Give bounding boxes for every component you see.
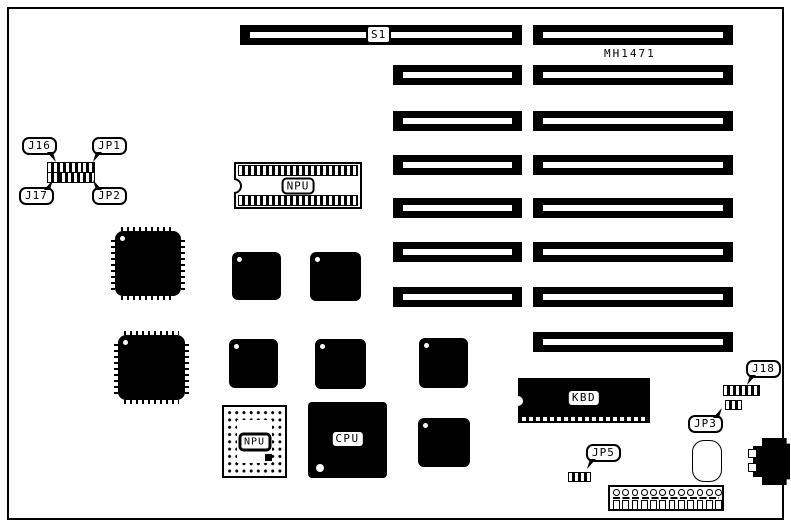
pin-square <box>678 500 685 510</box>
expansion-slot <box>393 111 522 131</box>
expansion-slot <box>533 65 733 85</box>
din-pin <box>748 463 757 472</box>
callout-j17: J17 <box>19 187 54 205</box>
pin-square <box>622 500 629 510</box>
pin-oval <box>715 489 722 496</box>
callout-j18: J18 <box>746 360 781 378</box>
pin-ticks <box>121 296 175 300</box>
connector-square-pins <box>610 500 722 510</box>
pin-oval <box>697 489 704 496</box>
qfp-chip-2 <box>118 335 185 400</box>
pin-oval <box>669 489 676 496</box>
npu-dip-label: NPU <box>282 177 315 194</box>
pin-oval <box>659 489 666 496</box>
jumper-block-jp2 <box>61 172 95 183</box>
callout-jp3: JP3 <box>688 415 723 433</box>
expansion-slot <box>533 25 733 45</box>
pin-ticks <box>181 237 185 290</box>
power-connector <box>608 485 724 511</box>
pin-square <box>650 500 657 510</box>
pin-square <box>697 500 704 510</box>
pin-oval <box>678 489 685 496</box>
din-pin <box>748 449 757 458</box>
expansion-slot <box>393 155 522 175</box>
kbd-label: KBD <box>569 391 599 405</box>
callout-jp2: JP2 <box>92 187 127 205</box>
callout-j18-label: J18 <box>752 362 775 375</box>
expansion-slot <box>393 242 522 262</box>
callout-jp1: JP1 <box>92 137 127 155</box>
callout-jp5: JP5 <box>586 444 621 462</box>
pin-square <box>659 500 666 510</box>
pga-center: NPU <box>237 420 272 463</box>
pin-oval <box>650 489 657 496</box>
expansion-slot <box>533 111 733 131</box>
expansion-slot <box>393 287 522 307</box>
callout-jp2-label: JP2 <box>98 189 121 202</box>
expansion-slot <box>533 332 733 352</box>
jumper-block-j18 <box>723 385 760 396</box>
motherboard-diagram: S1 MH1471 J16 JP1 J17 JP2 NPU <box>0 0 791 527</box>
pin-ticks <box>111 237 115 290</box>
callout-j16: J16 <box>22 137 57 155</box>
npu-pga-label: NPU <box>238 432 271 451</box>
pin-square <box>613 500 620 510</box>
chip <box>229 339 278 388</box>
chip <box>315 339 366 389</box>
chip <box>232 252 281 300</box>
jumper-block-jp3 <box>725 400 742 410</box>
expansion-slot <box>533 287 733 307</box>
chip <box>418 418 470 467</box>
expansion-slot <box>393 198 522 218</box>
expansion-slot <box>533 242 733 262</box>
pin-oval <box>622 489 629 496</box>
pin-oval <box>687 489 694 496</box>
pin-square <box>715 500 722 510</box>
pin-ticks <box>114 341 118 394</box>
dip-notch <box>234 178 242 194</box>
kbd-chip: KBD <box>518 378 650 423</box>
connector-dashes <box>613 497 719 499</box>
board-model-text: MH1471 <box>604 47 656 60</box>
crystal-outline <box>692 440 722 482</box>
expansion-slot <box>393 65 522 85</box>
expansion-slot <box>533 155 733 175</box>
pin-ticks <box>121 227 175 231</box>
pin-ticks <box>185 341 189 394</box>
callout-j17-label: J17 <box>25 189 48 202</box>
npu-pga-socket: NPU <box>222 405 287 478</box>
chip <box>419 338 468 388</box>
cpu-label: CPU <box>332 432 362 446</box>
pin-oval <box>641 489 648 496</box>
callout-jp1-label: JP1 <box>98 139 121 152</box>
keyboard-din-connector <box>762 438 790 485</box>
jumper-block-j17 <box>47 172 61 183</box>
pga-pin1-square <box>265 454 272 461</box>
pin-square <box>641 500 648 510</box>
pin-ticks <box>124 400 179 404</box>
cpu-chip: CPU <box>308 402 387 478</box>
pin-square <box>669 500 676 510</box>
callout-j16-label: J16 <box>28 139 51 152</box>
expansion-slot <box>533 198 733 218</box>
pin-square <box>687 500 694 510</box>
s1-label: S1 <box>366 25 391 44</box>
callout-jp5-label: JP5 <box>592 446 615 459</box>
pin-oval <box>706 489 713 496</box>
pin-ticks <box>124 331 179 335</box>
pin-oval <box>613 489 620 496</box>
pin-square <box>632 500 639 510</box>
connector-oval-pins <box>610 487 722 496</box>
npu-dip-socket: NPU <box>234 162 362 209</box>
pin-square <box>706 500 713 510</box>
qfp-chip-1 <box>115 231 181 296</box>
pin-oval <box>632 489 639 496</box>
jumper-block-jp5 <box>568 472 591 482</box>
callout-jp3-label: JP3 <box>694 417 717 430</box>
chip <box>310 252 361 301</box>
